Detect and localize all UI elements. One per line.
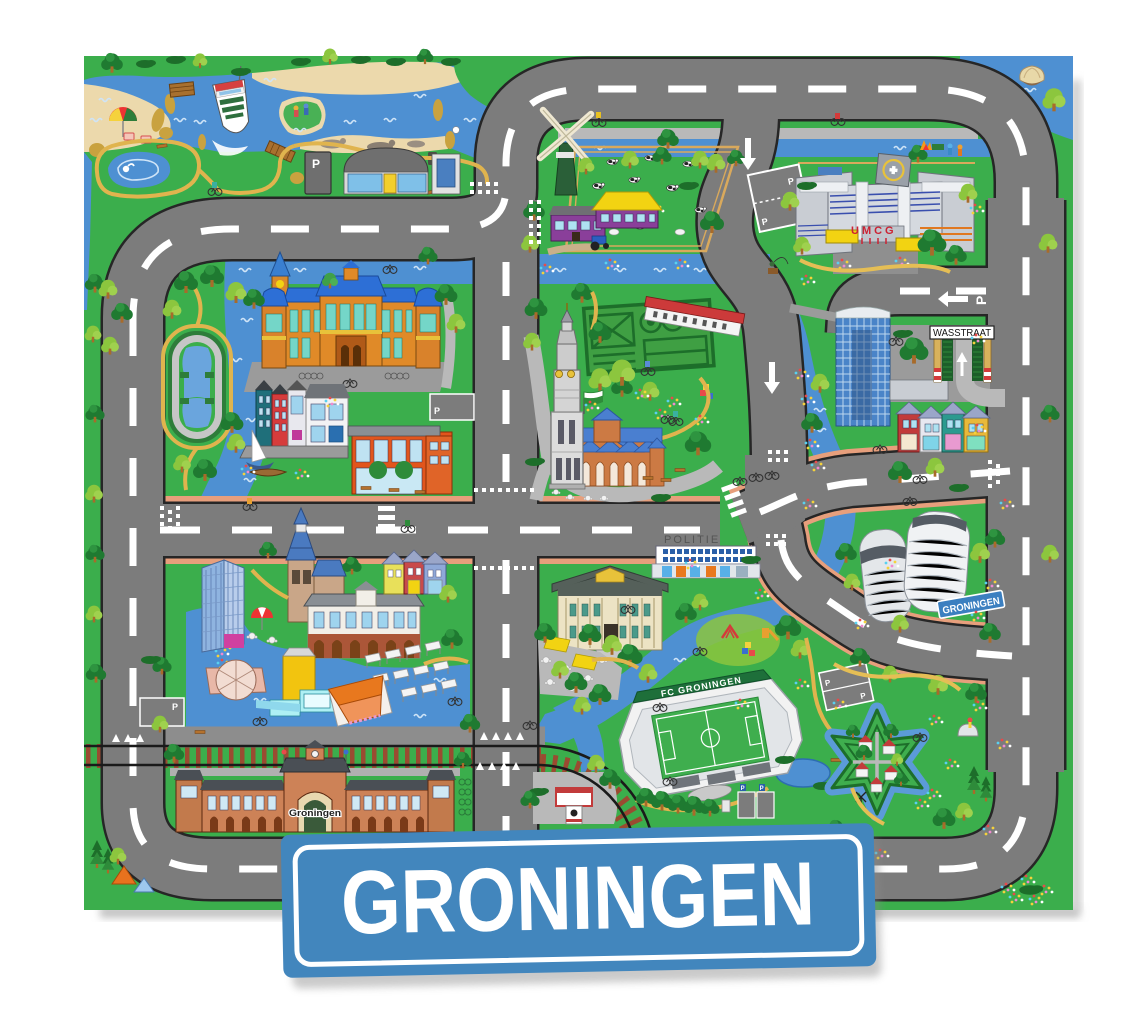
svg-text:WASSTRAAT: WASSTRAAT bbox=[933, 327, 992, 339]
svg-text:P: P bbox=[172, 702, 178, 712]
svg-text:GRONINGEN: GRONINGEN bbox=[340, 844, 816, 953]
svg-text:POLITIE: POLITIE bbox=[664, 534, 720, 546]
svg-text:P: P bbox=[760, 786, 764, 792]
svg-text:P: P bbox=[973, 296, 989, 305]
svg-text:P: P bbox=[312, 157, 320, 171]
svg-text:Groningen: Groningen bbox=[289, 808, 341, 819]
svg-text:UMCG: UMCG bbox=[851, 225, 897, 237]
svg-text:P: P bbox=[434, 406, 440, 416]
svg-text:P: P bbox=[741, 786, 745, 792]
